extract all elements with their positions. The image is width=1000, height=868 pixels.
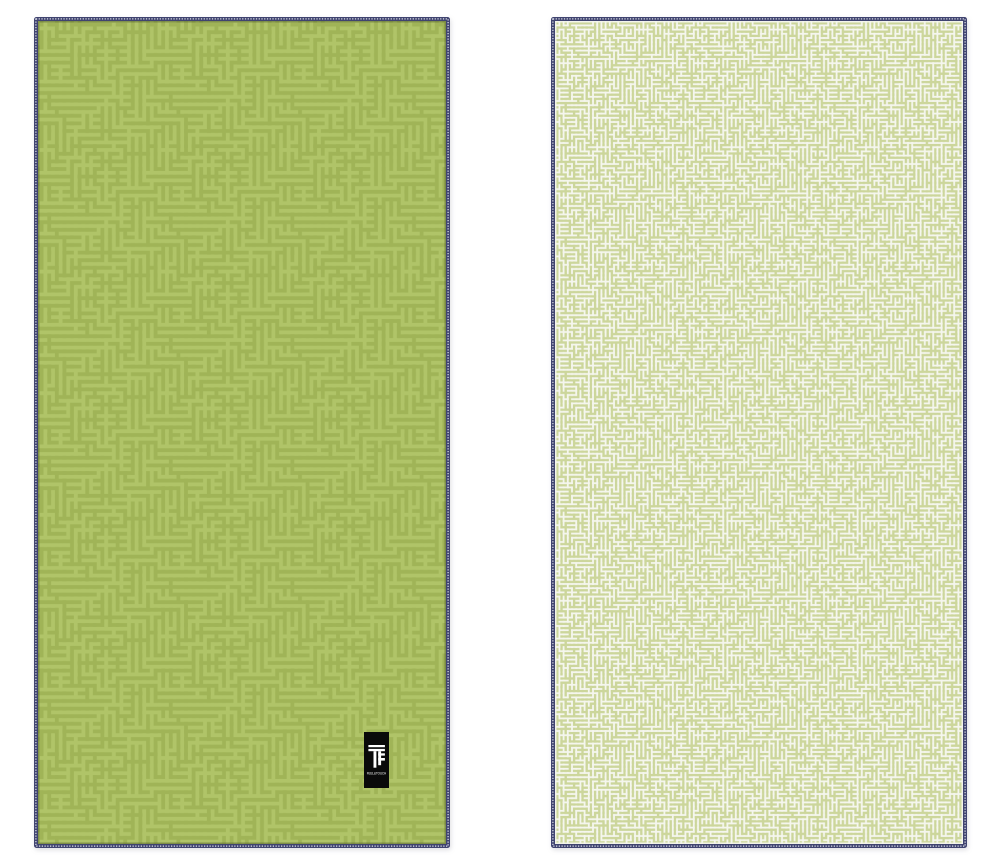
svg-text:FEEL&TOUCH: FEEL&TOUCH [367,771,387,775]
